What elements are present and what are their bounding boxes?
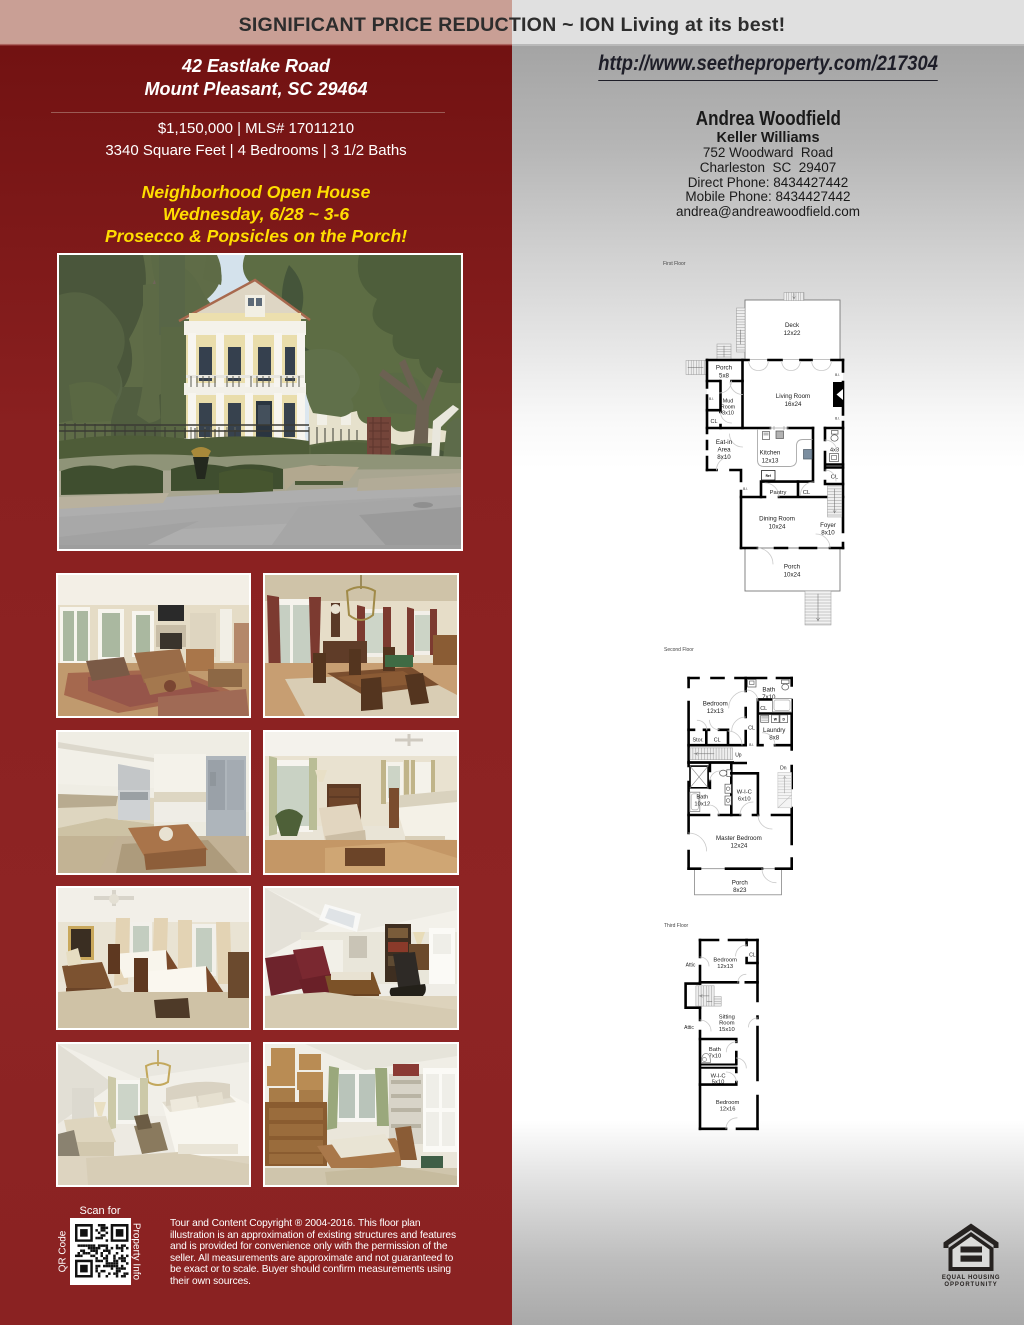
svg-text:Deck: Deck (785, 322, 800, 329)
svg-text:4x8: 4x8 (830, 448, 839, 454)
svg-text:Stor.: Stor. (693, 738, 704, 744)
svg-text:Bedroom: Bedroom (716, 1100, 740, 1106)
svg-text:16x24: 16x24 (785, 401, 802, 408)
svg-text:CL: CL (760, 706, 767, 712)
svg-text:CL: CL (749, 953, 756, 959)
svg-text:Attic: Attic (686, 963, 696, 969)
svg-text:Foyer: Foyer (820, 522, 836, 529)
svg-text:12x16: 12x16 (720, 1106, 736, 1112)
svg-text:CL: CL (748, 726, 755, 732)
svg-text:W-I-C: W-I-C (737, 790, 752, 796)
svg-text:Living Room: Living Room (776, 393, 810, 400)
svg-text:Bath: Bath (709, 1047, 721, 1053)
svg-text:10x24: 10x24 (784, 572, 801, 579)
svg-text:W-I-C: W-I-C (711, 1073, 726, 1079)
svg-text:Third Floor: Third Floor (664, 923, 689, 929)
svg-text:8x10: 8x10 (717, 454, 731, 461)
svg-text:10x12: 10x12 (694, 801, 710, 807)
svg-text:Area: Area (717, 447, 731, 454)
svg-text:Second Floor: Second Floor (664, 647, 694, 653)
svg-text:10x24: 10x24 (769, 524, 786, 531)
svg-text:Room: Room (719, 1021, 735, 1027)
svg-text:Bedroom: Bedroom (703, 701, 728, 708)
svg-text:Bath: Bath (696, 795, 708, 801)
svg-text:Porch: Porch (732, 880, 749, 887)
svg-text:Up: Up (735, 753, 742, 759)
svg-text:12x13: 12x13 (762, 458, 779, 465)
svg-text:B.I.: B.I. (835, 373, 840, 377)
svg-text:B.I.: B.I. (749, 743, 754, 747)
svg-text:8x23: 8x23 (733, 887, 747, 894)
svg-text:Bath: Bath (762, 687, 775, 694)
svg-text:Dining Room: Dining Room (759, 516, 795, 523)
svg-text:OPPORTUNITY: OPPORTUNITY (944, 1282, 997, 1287)
svg-text:8x10: 8x10 (722, 411, 734, 417)
svg-text:8x10: 8x10 (821, 530, 835, 537)
svg-text:B.I.: B.I. (743, 487, 748, 491)
svg-text:Kitchen: Kitchen (760, 450, 781, 457)
svg-text:First Floor: First Floor (663, 261, 686, 267)
svg-text:B.I.: B.I. (835, 417, 840, 421)
svg-text:12x13: 12x13 (717, 964, 733, 970)
svg-text:B.I.: B.I. (709, 397, 714, 401)
svg-text:EQUAL HOUSING: EQUAL HOUSING (942, 1275, 1000, 1281)
svg-text:CL: CL (711, 419, 718, 425)
svg-text:5x8: 5x8 (719, 373, 730, 380)
svg-text:Attic: Attic (684, 1025, 694, 1031)
svg-text:Bedroom: Bedroom (713, 958, 737, 964)
svg-text:Porch: Porch (784, 564, 801, 571)
svg-text:12x22: 12x22 (784, 330, 801, 337)
svg-text:15x10: 15x10 (719, 1027, 735, 1033)
svg-text:Porch: Porch (716, 365, 733, 372)
svg-text:5x10: 5x10 (712, 1079, 725, 1085)
svg-text:6x10: 6x10 (738, 797, 751, 803)
svg-text:Master Bedroom: Master Bedroom (716, 835, 762, 842)
svg-text:12x13: 12x13 (707, 708, 724, 715)
svg-text:CL: CL (714, 738, 721, 744)
svg-text:CL: CL (803, 490, 811, 496)
svg-text:Dn: Dn (780, 766, 787, 772)
svg-text:Eat-in: Eat-in (716, 439, 733, 446)
svg-text:12x24: 12x24 (730, 843, 747, 850)
